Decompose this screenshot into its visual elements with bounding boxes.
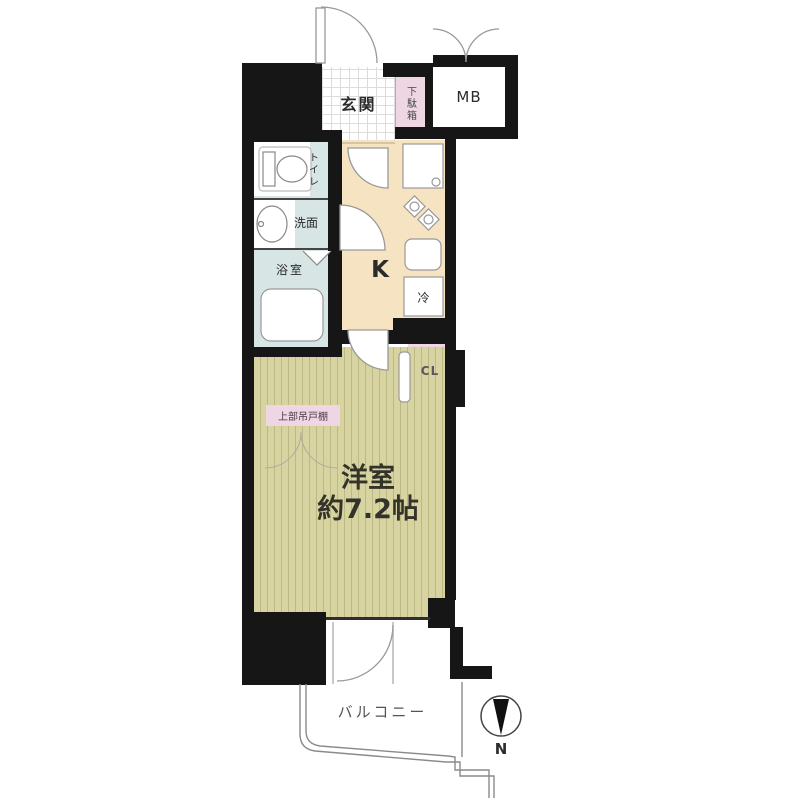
balcony-label: バルコニー xyxy=(330,700,435,722)
wall-segment xyxy=(328,330,350,344)
meter-box-label: MB xyxy=(433,85,505,109)
wall-segment xyxy=(505,55,518,135)
wall-segment xyxy=(242,130,342,142)
wall-segment xyxy=(395,127,518,139)
washroom-door-icon xyxy=(340,205,385,250)
room-door-icon xyxy=(348,330,388,370)
refrigerator-label: 冷 xyxy=(404,281,443,313)
main-room-name: 洋室 xyxy=(341,464,395,495)
wall-segment xyxy=(393,318,456,330)
bathtub-icon xyxy=(261,289,323,341)
entrance-door-icon xyxy=(316,7,377,63)
shoe-cabinet-label: 下駄箱 xyxy=(399,80,421,128)
wall-segment xyxy=(450,666,492,679)
closet-label: CL xyxy=(414,362,446,380)
wall-segment xyxy=(445,139,456,325)
main-room-label: 洋室 約7.2帖 xyxy=(272,452,464,538)
floor-plan: 玄関 下駄箱 MB トイレ 洗面 浴室 K 冷 CL 上部吊戸棚 洋室 約7.2… xyxy=(0,0,800,800)
wall-segment xyxy=(425,63,433,135)
wall-segment xyxy=(242,140,254,685)
balcony-door-icon xyxy=(333,622,393,684)
stove-icon xyxy=(404,196,439,230)
wall-segment xyxy=(242,347,342,357)
north-label: N xyxy=(492,740,510,758)
wall-segment xyxy=(428,598,455,628)
bathroom-label: 浴室 xyxy=(268,260,312,278)
wall-segment xyxy=(245,612,326,685)
toilet-label: トイレ xyxy=(303,144,321,196)
north-arrow-icon xyxy=(481,696,521,736)
balcony-window-line xyxy=(326,617,430,620)
entrance-label: 玄関 xyxy=(322,85,395,121)
washing-machine-icon xyxy=(403,144,443,188)
wall-segment xyxy=(242,63,322,140)
upper-cabinet-label: 上部吊戸棚 xyxy=(266,405,340,426)
wall-segment xyxy=(456,350,465,407)
main-room-size: 約7.2帖 xyxy=(317,495,419,526)
kitchen-sink-icon xyxy=(405,239,441,270)
toilet-door-icon xyxy=(348,148,388,188)
washroom-label: 洗面 xyxy=(288,213,324,231)
closet-door-icon xyxy=(399,352,410,402)
washbasin-icon xyxy=(257,206,287,242)
kitchen-label: K xyxy=(364,250,396,290)
